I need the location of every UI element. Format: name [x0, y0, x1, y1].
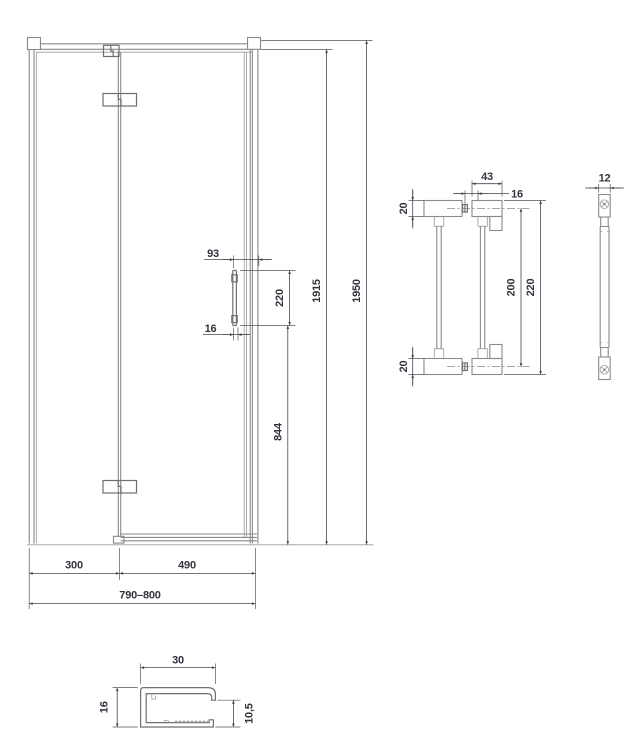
screw-head-bottom-icon — [600, 365, 609, 374]
bottom-profile-section-view: 30 16 10,5 — [99, 655, 256, 727]
dim-cap-height-top: 20 — [398, 189, 424, 229]
pivot-bracket-top — [104, 45, 120, 56]
drawing-page: 93 220 16 844 1915 1950 — [0, 0, 628, 750]
door-handle — [232, 271, 237, 326]
dim-thickness: 12 — [585, 173, 624, 193]
dim-label-220: 220 — [274, 289, 286, 307]
handle-cap-top-left — [424, 201, 462, 217]
dim-label-43: 43 — [481, 171, 493, 183]
dim-label-1915: 1915 — [311, 279, 323, 303]
handle-front-view: 43 16 20 20 200 — [398, 171, 546, 387]
profile-gasket-hook — [152, 694, 156, 699]
dim-label-16-profile: 16 — [99, 701, 111, 713]
dim-label-790-800: 790–800 — [119, 590, 161, 602]
side-bar — [600, 227, 609, 348]
wall-profile-right — [244, 38, 260, 544]
handle-side-view: 12 — [585, 173, 624, 380]
handle-leg-bottom-right — [490, 345, 502, 359]
wall-profile-left — [28, 38, 41, 544]
hinge-axis — [118, 52, 120, 537]
dim-screw-offset: 16 — [453, 188, 523, 203]
dim-label-93: 93 — [207, 248, 219, 260]
dim-label-1950: 1950 — [351, 279, 363, 303]
dim-label-490: 490 — [178, 560, 196, 572]
screw-head-top-icon — [600, 200, 609, 209]
dim-handle-length: 220 — [240, 271, 296, 326]
dim-label-30: 30 — [172, 655, 184, 667]
dim-handle-bottom-offset: 844 — [272, 326, 287, 545]
dim-glass-height: 1915 — [261, 49, 333, 544]
dim-label-844: 844 — [272, 422, 284, 441]
dim-cap-width: 43 — [472, 171, 502, 197]
dim-label-12: 12 — [599, 173, 611, 185]
dim-handle-edge-offset: 93 — [204, 248, 272, 268]
side-neck-top — [599, 217, 611, 227]
bottom-rail — [114, 534, 257, 543]
dim-label-300: 300 — [65, 560, 83, 572]
dim-screw-spacing: 200 — [505, 208, 521, 366]
dim-label-220-handle: 220 — [525, 279, 537, 297]
dim-widths: 300 490 790–800 — [29, 548, 255, 609]
handle-cap-bottom-left — [424, 359, 462, 375]
dim-label-16: 16 — [205, 323, 217, 335]
door-front-view: 93 220 16 844 1915 1950 — [27, 38, 374, 610]
hinge-top — [103, 94, 137, 107]
dim-label-16-handle: 16 — [511, 188, 523, 200]
dim-profile-inner-height: 10,5 — [215, 700, 255, 727]
handle-bar-right — [480, 226, 484, 348]
dim-label-20-top: 20 — [398, 203, 410, 215]
handle-collars — [434, 217, 487, 359]
dim-label-10-5: 10,5 — [243, 703, 255, 724]
technical-drawing-canvas: 93 220 16 844 1915 1950 — [0, 0, 628, 750]
top-support-bar — [36, 44, 252, 52]
handle-leg-top-right — [490, 217, 502, 231]
dim-profile-width: 30 — [141, 655, 216, 684]
dim-cap-height-bottom: 20 — [398, 347, 424, 387]
hinge-bottom — [103, 481, 137, 494]
dim-label-200: 200 — [505, 279, 517, 297]
dim-profile-height: 16 — [99, 688, 138, 727]
dim-label-20-bottom: 20 — [398, 361, 410, 373]
side-neck-bottom — [599, 348, 611, 358]
handle-bar-left — [437, 226, 441, 348]
